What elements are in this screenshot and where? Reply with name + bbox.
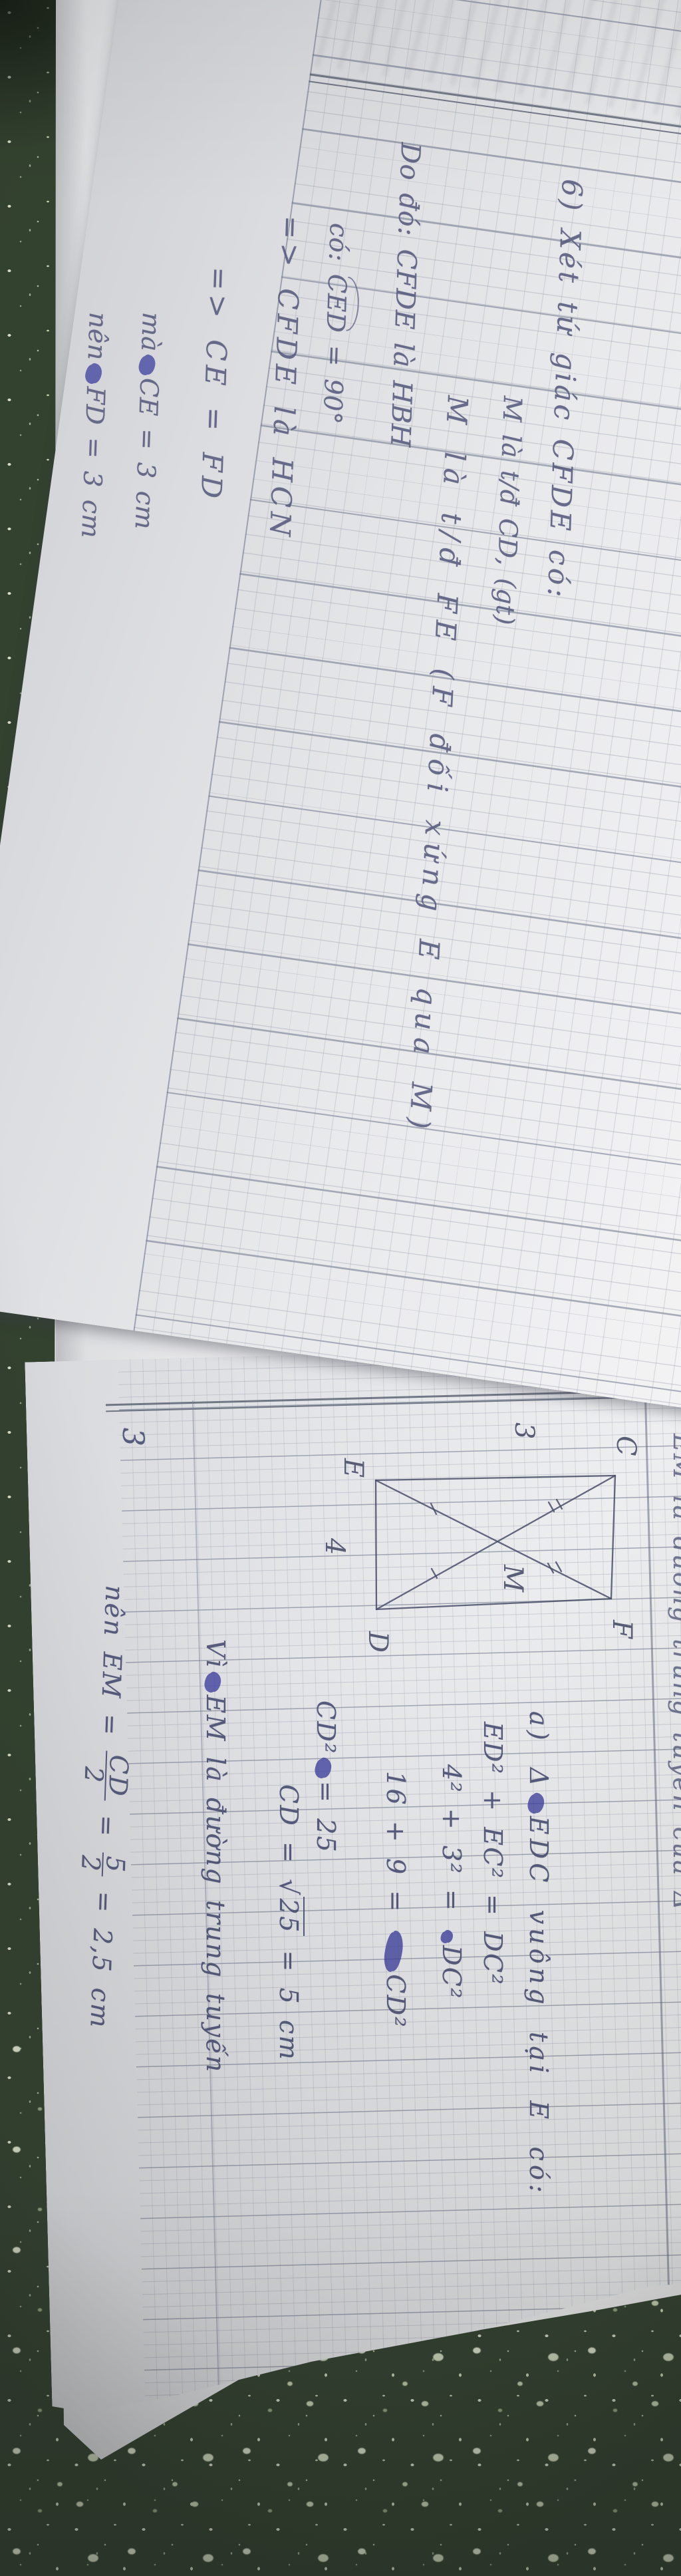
vertex-label-E: E xyxy=(338,1458,368,1478)
line-f-pre: CD = xyxy=(274,1784,303,1879)
ink-scribble xyxy=(140,354,157,377)
midpoint-label-M: M xyxy=(497,1564,528,1593)
line-a-post: EDC vuông tại E có: xyxy=(524,1816,553,2197)
line-a-pre: a) Δ xyxy=(524,1711,553,1790)
line-e-post: = 25 xyxy=(311,1781,340,1853)
fraction-CD-2: CD2 xyxy=(81,1750,130,1802)
line-u9-pre: nên xyxy=(82,311,113,361)
line-u5-post: = 90° xyxy=(317,332,350,424)
fraction-numerator: 5 xyxy=(103,1852,127,1877)
photo-of-notebook: C E D F M 3 4 3 a) ΔEDC vuông tại E có: … xyxy=(0,0,681,2576)
vertex-label-F: F xyxy=(607,1619,637,1639)
ink-scribble xyxy=(529,1792,545,1814)
handwriting-line-g: VìEM là đường trung tuyến xyxy=(201,1639,230,2074)
figure-side-EC xyxy=(376,1476,615,1480)
line-h-mid: = xyxy=(91,1800,122,1853)
fraction-numerator: CD xyxy=(106,1751,131,1801)
line-c-pre: 4² + 3² = xyxy=(437,1764,466,1927)
vertex-label-C: C xyxy=(611,1436,641,1456)
tick-mark xyxy=(549,1502,554,1512)
ink-scribble xyxy=(86,363,103,385)
handwriting-line-b: ED² + EC² = DC² xyxy=(478,1722,507,1986)
figure-side-DE xyxy=(376,1480,376,1609)
radicand: 25 xyxy=(274,1897,305,1936)
ink-scribble xyxy=(384,1930,405,1972)
line-g-pre: Vì xyxy=(201,1639,230,1669)
figure-side-CF xyxy=(611,1476,615,1599)
angle-CED-with-hat: CED xyxy=(321,273,352,333)
handwriting-line-c: 4² + 3² = DC² xyxy=(437,1764,466,2000)
handwriting-line-d: 16 + 9 = CD² xyxy=(381,1771,410,2028)
problem-number: 3 xyxy=(116,1428,150,1448)
line-g-post: EM là đường trung tuyến xyxy=(201,1695,230,2074)
geometry-figure: C E D F M 3 4 xyxy=(286,1417,652,1716)
line-u9-post: FD = 3 cm xyxy=(76,386,110,538)
line-d-pre: 16 + 9 = xyxy=(381,1771,410,1927)
ink-scribble xyxy=(205,1671,222,1692)
line-h-suffix: = 2,5 cm xyxy=(84,1876,119,2030)
line-u8-pre: mà xyxy=(136,311,166,352)
square-root: √25 xyxy=(274,1879,305,1935)
handwriting-clipped-right-edge: EM là đường trung tuyến của Δ xyxy=(668,1434,681,1911)
side-length-3: 3 xyxy=(509,1422,539,1439)
vertex-label-D: D xyxy=(362,1631,393,1653)
handwriting-line-f: CD = √25 = 5 cm xyxy=(274,1784,303,2061)
handwriting-line-e: CD²= 25 xyxy=(311,1700,340,1853)
figure-side-FD xyxy=(376,1599,611,1609)
handwriting-line-a: a) ΔEDC vuông tại E có: xyxy=(524,1711,553,2197)
fraction-5-2: 52 xyxy=(78,1851,127,1877)
line-u8-post: CE = 3 cm xyxy=(130,377,164,530)
figure-diagonal-CD xyxy=(376,1476,615,1609)
fraction-denominator: 2 xyxy=(78,1851,104,1877)
line-h-prefix: nên EM = xyxy=(94,1585,130,1752)
ink-scribble xyxy=(442,1929,454,1943)
line-f-post: = 5 cm xyxy=(274,1936,303,2061)
line-u5-pre: có: xyxy=(323,222,354,274)
tick-mark xyxy=(556,1562,561,1571)
line-d-post: CD² xyxy=(381,1974,410,2028)
line-e-pre: CD² xyxy=(311,1700,340,1755)
side-length-4: 4 xyxy=(319,1537,350,1555)
line-c-post: DC² xyxy=(437,1945,466,2000)
ink-scribble xyxy=(316,1757,333,1779)
